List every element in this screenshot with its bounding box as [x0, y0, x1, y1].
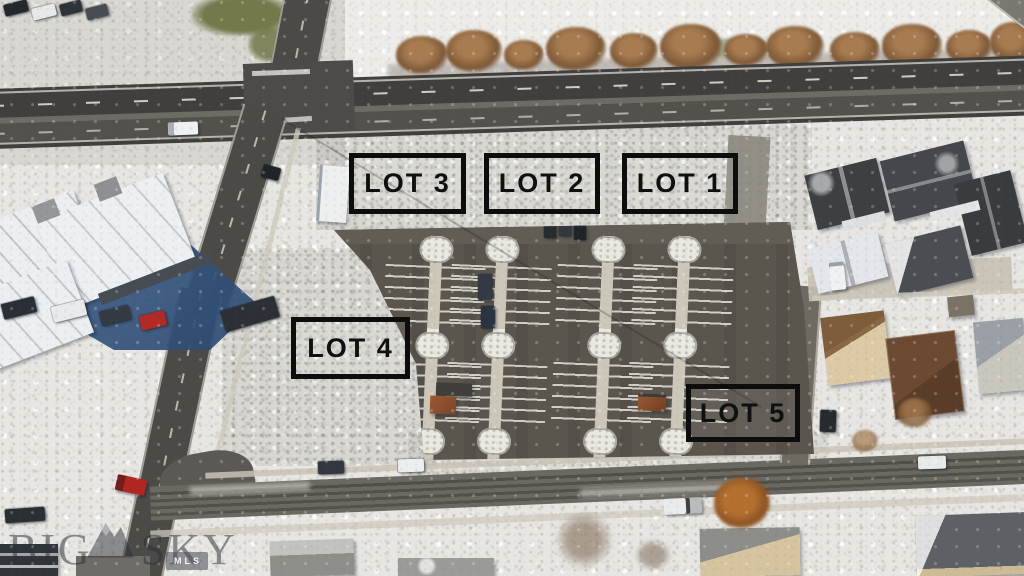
house-roof — [700, 527, 801, 576]
shed — [430, 396, 457, 415]
parking-island — [583, 427, 618, 455]
mls-badge: MLS — [166, 552, 208, 570]
parking-stripes — [501, 364, 548, 428]
parking-island — [415, 331, 450, 359]
tree-bare — [556, 512, 612, 568]
shed — [436, 382, 472, 396]
lot-label-1: LOT 1 — [622, 153, 738, 214]
tree — [446, 30, 502, 72]
car-on-street — [918, 456, 946, 470]
aerial-photo: LOT 3 LOT 2 LOT 1 LOT 4 LOT 5 BIG SKY ML… — [0, 0, 1024, 576]
garage — [947, 295, 975, 318]
parked-van — [829, 261, 847, 290]
lot-label-text: LOT 4 — [307, 333, 394, 364]
car-on-street — [398, 459, 424, 473]
portable-building — [316, 165, 350, 223]
parking-stripes — [687, 266, 734, 332]
watermark-big-sky-mls: BIG SKY MLS — [8, 504, 228, 572]
car-on-street — [318, 461, 344, 475]
tree — [898, 398, 932, 428]
car-on-highway — [168, 121, 198, 135]
parked-car — [820, 410, 837, 433]
snow-patch — [190, 482, 310, 495]
watermark-word-big: BIG — [8, 528, 93, 572]
parking-island — [591, 235, 626, 263]
lot-label-text: LOT 3 — [364, 168, 451, 199]
lot-label-text: LOT 5 — [700, 398, 787, 429]
shed — [638, 394, 667, 412]
parking-island — [477, 427, 512, 455]
parking-island — [667, 235, 702, 263]
tree — [852, 430, 878, 452]
tree-autumn — [714, 478, 770, 528]
lot-label-5: LOT 5 — [686, 384, 800, 442]
tree — [660, 24, 722, 70]
tree — [546, 27, 606, 71]
tree-bare — [636, 540, 670, 570]
tree — [396, 36, 448, 74]
parked-trailer — [478, 274, 492, 300]
lot-label-3: LOT 3 — [349, 153, 466, 214]
parking-walkway — [443, 234, 553, 470]
lot-label-text: LOT 1 — [637, 168, 724, 199]
house-tan — [820, 310, 892, 385]
parking-stripes — [631, 264, 678, 330]
house-roof — [269, 539, 354, 576]
parking-island — [481, 331, 516, 359]
tree — [504, 40, 544, 70]
house-roof — [398, 558, 494, 576]
house-roof — [915, 512, 1024, 576]
house-gray — [973, 318, 1024, 394]
lot-label-2: LOT 2 — [484, 153, 600, 214]
parking-stripes — [551, 362, 598, 426]
parking-island — [419, 235, 454, 263]
lot-label-4: LOT 4 — [291, 317, 410, 379]
lot-label-text: LOT 2 — [499, 168, 586, 199]
parking-island — [587, 331, 622, 359]
parked-trailer — [481, 306, 495, 328]
parked-car — [574, 225, 586, 240]
mountain-icon — [84, 516, 136, 560]
parking-island — [663, 331, 698, 359]
pickup-truck — [664, 497, 703, 515]
tree — [724, 34, 768, 66]
tree — [610, 33, 658, 69]
